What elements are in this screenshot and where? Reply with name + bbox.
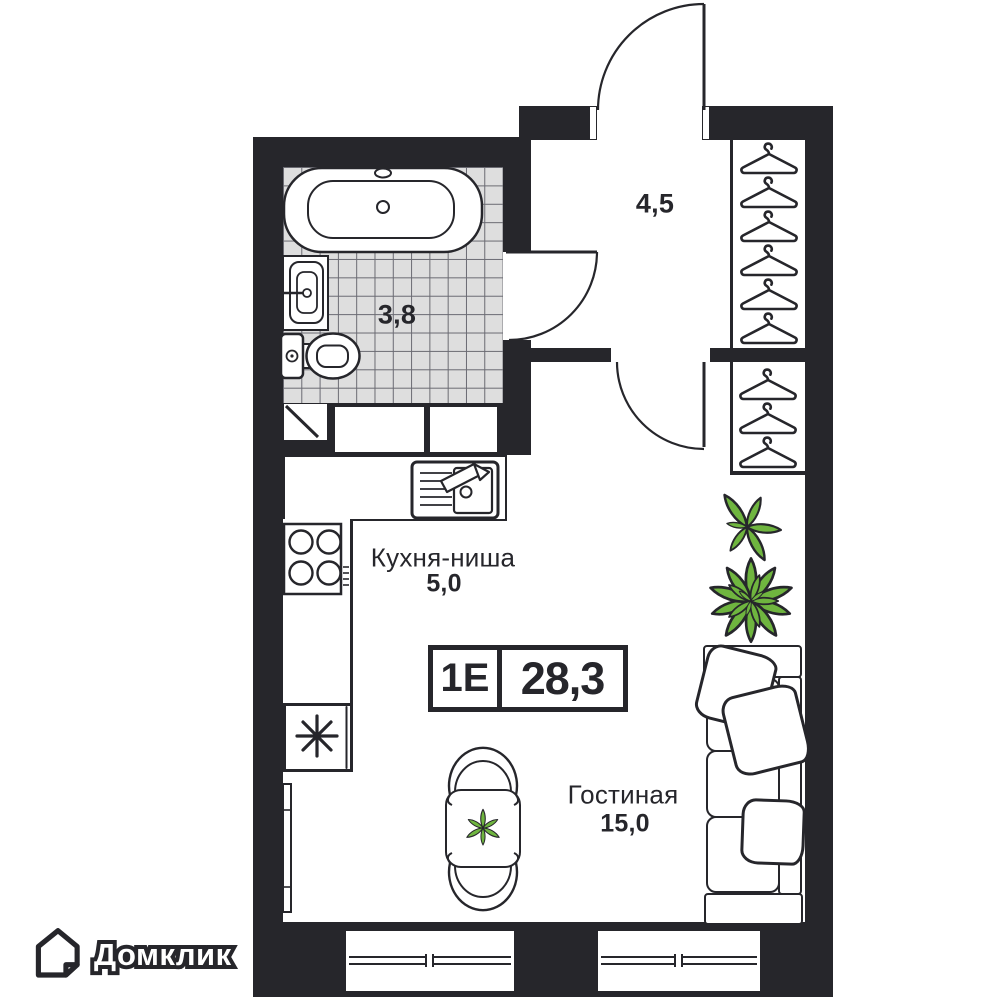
house-icon xyxy=(30,926,86,982)
wall-top-bathroom xyxy=(253,137,531,167)
domclick-logo-text: Домклик Домклик xyxy=(94,939,232,970)
hallway-area-label: 4,5 xyxy=(636,189,674,220)
plant-sprig-icon xyxy=(721,492,782,562)
wardrobe-lower xyxy=(730,362,805,475)
wall-cabinet-1 xyxy=(335,407,424,452)
living-room-door xyxy=(617,362,704,449)
bathroom-door-inset xyxy=(284,404,327,440)
kitchen-area-label: 5,0 xyxy=(426,570,461,599)
wardrobe-upper xyxy=(730,140,805,348)
window-glazing-tick xyxy=(425,954,434,967)
living-door-jamb-right xyxy=(703,348,710,362)
wall-cabinet-2 xyxy=(430,407,497,452)
sofa-armrest-bottom xyxy=(704,893,803,925)
plant-rosette-icon xyxy=(709,559,793,642)
living-door-jamb-left xyxy=(611,348,618,362)
unit-total-area: 28,3 xyxy=(502,650,623,707)
kitchen-counter-top xyxy=(283,455,507,521)
dining-table xyxy=(445,789,521,868)
window-kitchen xyxy=(343,928,517,994)
entry-door-jamb-right xyxy=(702,106,710,140)
living-name-label: Гостиная xyxy=(568,780,679,811)
sofa-pillow-3 xyxy=(740,798,806,866)
bathroom-area-label: 3,8 xyxy=(378,300,416,331)
bathroom-tile-floor xyxy=(283,167,503,403)
wall-left xyxy=(253,137,283,997)
domclick-logo: Домклик Домклик xyxy=(30,926,232,982)
radiator xyxy=(282,783,292,913)
unit-label-box: 1Е 28,3 xyxy=(428,645,628,712)
entry-door-jamb-left xyxy=(589,106,597,140)
wall-hall-living-right xyxy=(710,348,833,362)
floor-plan-page: { "branding": { "logo_text": "Домклик" }… xyxy=(0,0,1001,1001)
entrance-door xyxy=(598,4,704,110)
window-glazing-tick xyxy=(674,954,683,967)
wall-right xyxy=(805,106,833,997)
fridge xyxy=(283,703,353,772)
window-living xyxy=(595,928,763,994)
wall-top-entry-left xyxy=(519,106,589,140)
unit-type-label: 1Е xyxy=(433,650,502,707)
bathroom-door xyxy=(506,252,597,340)
wall-bathroom-east-upper xyxy=(503,167,531,252)
kitchen-counter-left xyxy=(283,519,353,705)
living-area-label: 15,0 xyxy=(600,810,649,839)
wall-hall-living-left xyxy=(503,348,613,362)
